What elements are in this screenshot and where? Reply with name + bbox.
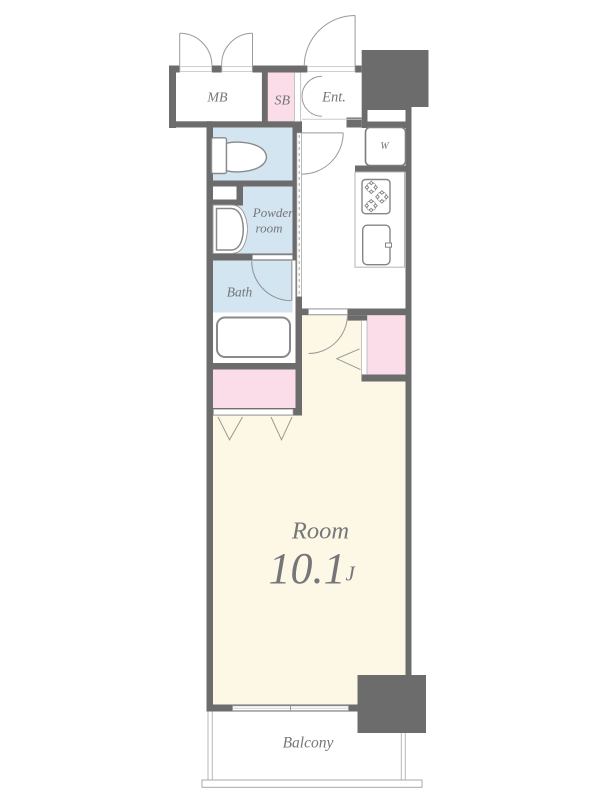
svg-text:Powder: Powder xyxy=(252,205,294,220)
svg-text:SB: SB xyxy=(275,93,291,108)
svg-text:Bath: Bath xyxy=(227,284,253,299)
svg-text:Ent.: Ent. xyxy=(321,89,346,105)
svg-text:Room: Room xyxy=(291,517,349,544)
svg-text:MB: MB xyxy=(206,91,228,106)
svg-text:room: room xyxy=(256,220,283,235)
svg-text:10.1: 10.1 xyxy=(269,544,346,593)
svg-text:Balcony: Balcony xyxy=(283,735,334,752)
